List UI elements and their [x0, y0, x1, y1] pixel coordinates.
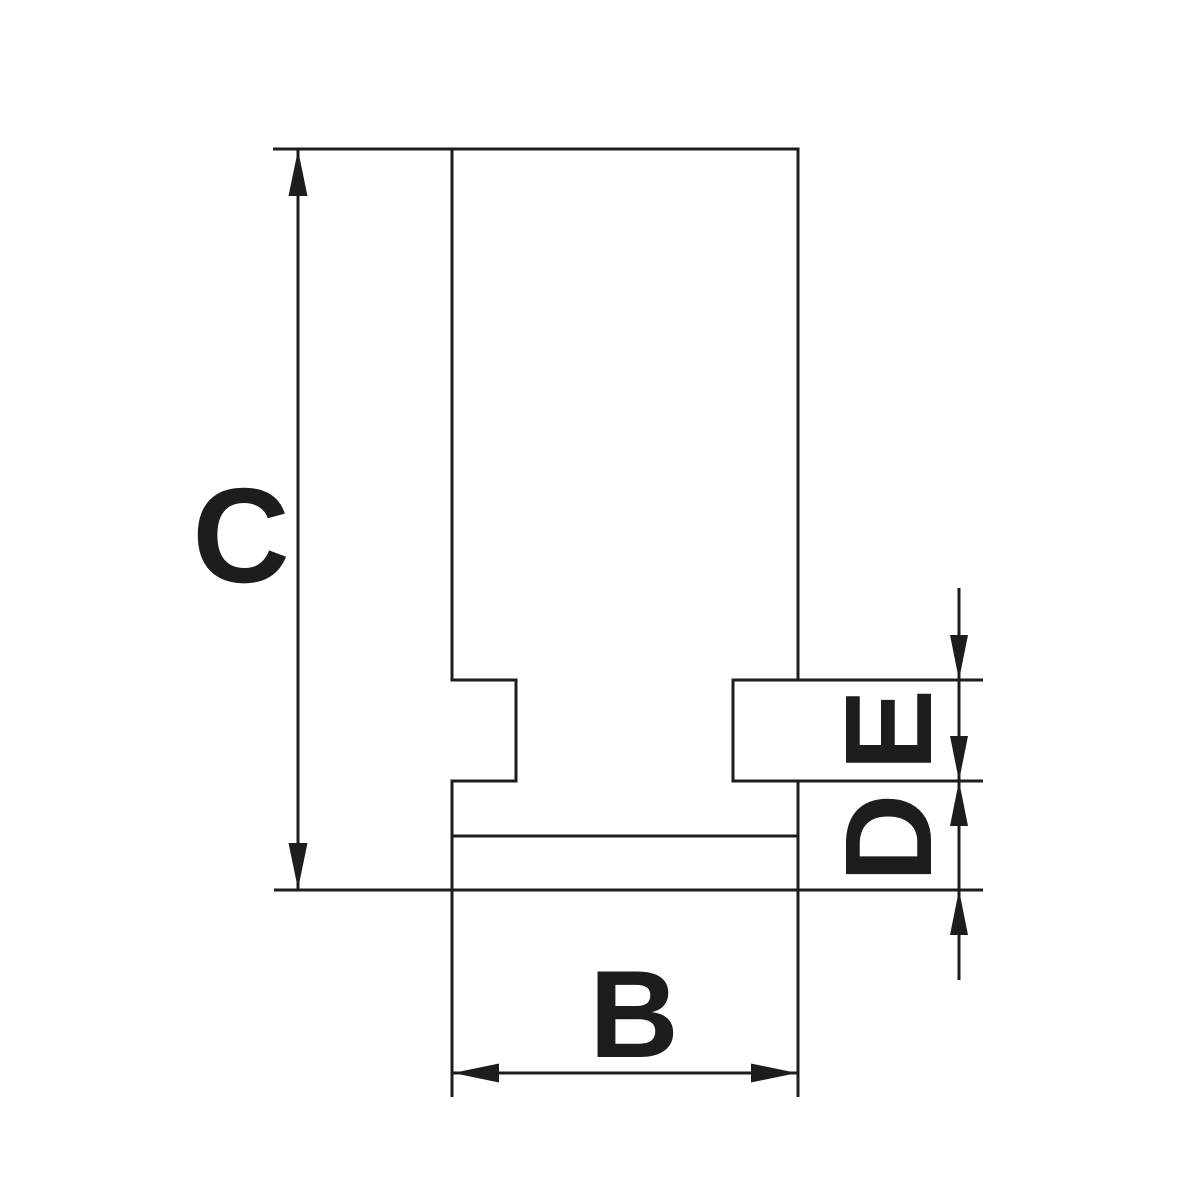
- dimension-label-c: C: [192, 460, 290, 611]
- arrowhead-b-right: [751, 1064, 797, 1083]
- dimension-c: C: [192, 149, 307, 890]
- dimension-d-e: E D: [821, 588, 968, 980]
- technical-drawing-page: C B E D: [0, 0, 1200, 1200]
- dimension-label-d: D: [821, 794, 958, 883]
- jaw-cross-section-drawing: C B E D: [0, 0, 1200, 1200]
- arrowhead-c-bottom: [289, 843, 308, 889]
- part-outline: [452, 149, 798, 890]
- arrowhead-b-left: [453, 1064, 499, 1083]
- arrowhead-c-top: [289, 150, 308, 196]
- arrowhead-e-top: [950, 635, 968, 680]
- dimension-b: B: [452, 946, 798, 1084]
- arrowhead-d-bottom: [950, 890, 968, 935]
- dimension-label-b: B: [589, 946, 679, 1084]
- dimension-label-e: E: [821, 689, 958, 771]
